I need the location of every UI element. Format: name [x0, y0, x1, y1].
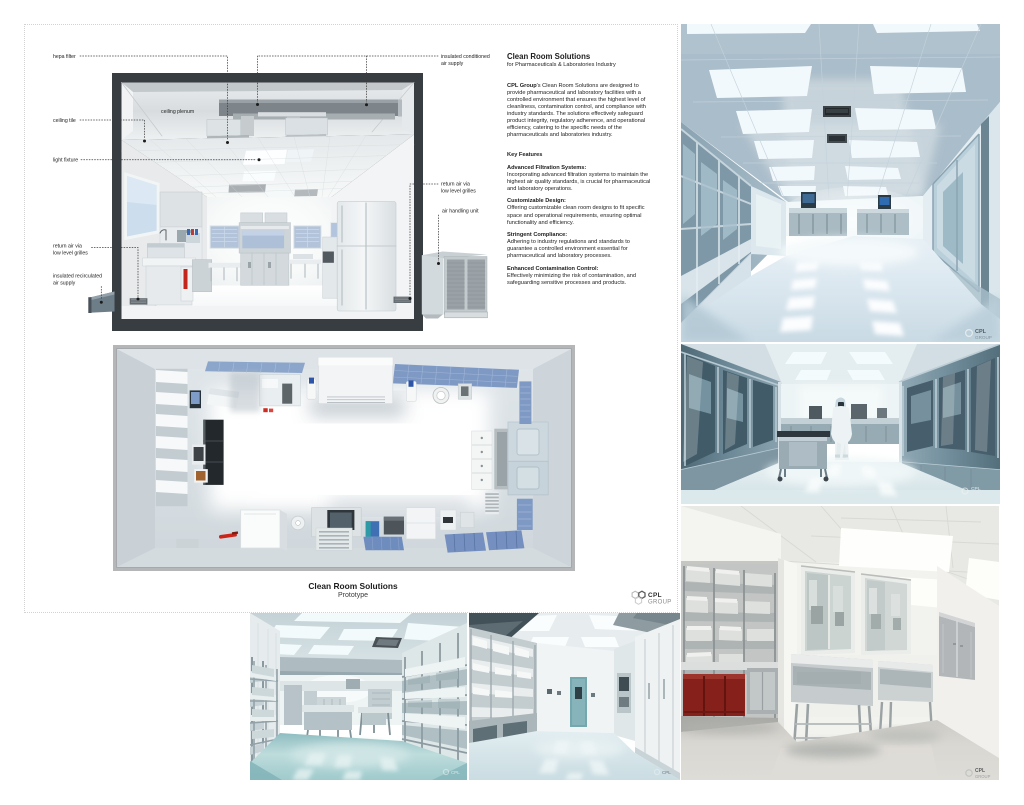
svg-text:GROUP: GROUP	[975, 774, 991, 779]
svg-text:air supply: air supply	[441, 61, 464, 67]
svg-text:GROUP: GROUP	[648, 600, 672, 606]
svg-text:insulated conditioned: insulated conditioned	[441, 54, 490, 60]
svg-text:light fixture: light fixture	[53, 158, 78, 164]
svg-text:insulated recirculated: insulated recirculated	[53, 274, 102, 280]
svg-text:CPL: CPL	[648, 592, 662, 599]
svg-text:ceiling tile: ceiling tile	[53, 118, 76, 124]
svg-text:ceiling plenum: ceiling plenum	[161, 109, 194, 115]
svg-text:GROUP: GROUP	[975, 335, 992, 340]
svg-text:CPL: CPL	[451, 770, 460, 775]
svg-text:CPL: CPL	[662, 770, 671, 775]
svg-text:return air via: return air via	[441, 182, 470, 188]
svg-text:low level grilles: low level grilles	[53, 251, 88, 257]
svg-text:return air via: return air via	[53, 244, 82, 250]
svg-text:air supply: air supply	[53, 281, 76, 287]
svg-text:GROUP: GROUP	[971, 491, 986, 496]
svg-text:air handling unit: air handling unit	[442, 209, 479, 215]
svg-text:low level grilles: low level grilles	[441, 189, 476, 195]
svg-text:hepa filter: hepa filter	[53, 54, 76, 60]
